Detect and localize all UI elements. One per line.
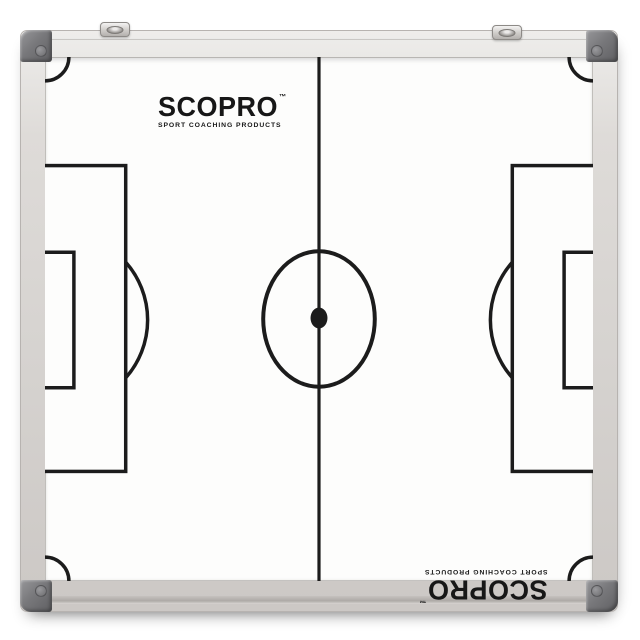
- corner-cap-top-right: [586, 30, 618, 62]
- brand-logo-bottom-rotated: SCOPRO™ SPORT COACHING PRODUCTS: [419, 567, 548, 603]
- corner-arc-bottom-left: [45, 557, 69, 581]
- soccer-pitch-markings: [45, 57, 593, 581]
- center-spot: [311, 308, 328, 329]
- whiteboard-surface: SCOPRO™ SPORT COACHING PRODUCTS SCOPRO™ …: [45, 57, 593, 581]
- mounting-clip-right: [492, 25, 522, 40]
- brand-logo-top: SCOPRO™ SPORT COACHING PRODUCTS: [158, 94, 287, 130]
- brand-tagline: SPORT COACHING PRODUCTS: [158, 123, 287, 130]
- brand-name: SCOPRO™: [419, 576, 548, 604]
- brand-tagline: SPORT COACHING PRODUCTS: [419, 567, 548, 574]
- mounting-clip-left: [100, 22, 130, 37]
- page-background: SCOPRO™ SPORT COACHING PRODUCTS SCOPRO™ …: [0, 0, 640, 640]
- trademark-symbol: ™: [419, 596, 427, 603]
- goal-area-right: [564, 252, 593, 387]
- corner-cap-bottom-right: [586, 580, 618, 612]
- tactics-board: SCOPRO™ SPORT COACHING PRODUCTS SCOPRO™ …: [20, 30, 618, 612]
- trademark-symbol: ™: [279, 94, 287, 101]
- brand-text: SCOPRO: [158, 92, 278, 123]
- corner-cap-top-left: [20, 30, 52, 62]
- corner-arc-bottom-right: [569, 557, 593, 581]
- goal-area-left: [45, 252, 74, 387]
- brand-name: SCOPRO™: [158, 94, 287, 122]
- brand-text: SCOPRO: [428, 575, 548, 606]
- corner-cap-bottom-left: [20, 580, 52, 612]
